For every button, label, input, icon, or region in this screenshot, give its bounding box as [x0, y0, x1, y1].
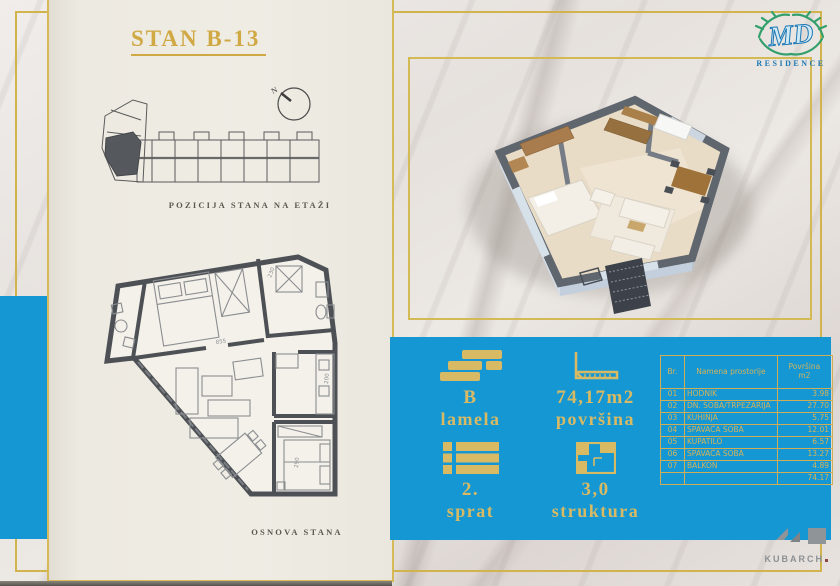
- col-header-name: Namena prostorije: [685, 356, 778, 389]
- info-item-struktura: 3,0 struktura: [533, 440, 658, 532]
- info-item-sprat: 2. sprat: [408, 440, 533, 532]
- floor-list-icon: [408, 440, 533, 476]
- struktura-value: 3,0: [533, 479, 658, 501]
- info-item-lamela: B lamela: [408, 348, 533, 440]
- brand-name: RESIDENCE: [745, 59, 837, 68]
- floor-plan-drawing: 855 230 200 290: [88, 248, 346, 518]
- info-grid: B lamela 74,17m2 površina 2. sp: [408, 348, 658, 532]
- kubarch-icon: [774, 526, 828, 548]
- povrsina-value: 74,17m2: [533, 387, 658, 409]
- dim-label: 290: [294, 457, 301, 468]
- left-blue-strip: [0, 296, 47, 539]
- table-row: 01 HODNIK 3.98: [661, 389, 833, 401]
- info-item-povrsina: 74,17m2 površina: [533, 348, 658, 440]
- kubarch-logo: KUBARCH: [740, 526, 828, 572]
- table-total-row: 74.17: [661, 473, 833, 485]
- md-monogram-wreath: MD: [745, 11, 837, 57]
- col-header-br: Br.: [661, 356, 685, 389]
- sprat-label: sprat: [408, 501, 533, 522]
- lamela-label: lamela: [408, 409, 533, 430]
- lamela-value: B: [408, 387, 533, 409]
- table-row: 07 BALKON 4.89: [661, 461, 833, 473]
- left-panel: STAN B-13 N: [47, 0, 394, 582]
- md-residence-logo: MD RESIDENCE: [745, 11, 837, 77]
- table-row: 03 KUHINJA 5.75: [661, 413, 833, 425]
- table-row: 05 KUPATILO 6.57: [661, 437, 833, 449]
- sprat-value: 2.: [408, 479, 533, 501]
- svg-text:MD: MD: [766, 18, 815, 53]
- col-header-area: Površina m2: [777, 356, 832, 389]
- struktura-label: struktura: [533, 501, 658, 522]
- lamela-icon: [408, 348, 533, 384]
- dim-label: 200: [324, 373, 331, 384]
- svg-text:N: N: [270, 85, 280, 96]
- page-title: STAN B-13: [131, 26, 266, 56]
- structure-plan-icon: [533, 440, 658, 476]
- area-ruler-icon: [533, 348, 658, 384]
- kubarch-name: KUBARCH: [740, 554, 828, 564]
- table-row: 06 SPAVAĆA SOBA 13.27: [661, 449, 833, 461]
- room-table: Br. Namena prostorije Površina m2 01 HOD…: [660, 355, 833, 485]
- table-row: 02 DN. SOBA/TRPEZARIJA 27.70: [661, 401, 833, 413]
- povrsina-label: površina: [533, 409, 658, 430]
- photo-edge-shadow: [0, 581, 392, 586]
- table-header-row: Br. Namena prostorije Površina m2: [661, 356, 833, 389]
- position-plan-caption: POZICIJA STANA NA ETAŽI: [100, 200, 400, 210]
- table-row: 04 SPAVAĆA SOBA 12.01: [661, 425, 833, 437]
- table-total-value: 74.17: [777, 473, 832, 485]
- compass-icon: N: [270, 85, 310, 120]
- apartment-3d-render: [420, 58, 800, 316]
- position-plan-drawing: N: [97, 80, 332, 198]
- brochure-page: STAN B-13 N: [0, 0, 840, 586]
- kubarch-dot: [825, 559, 828, 562]
